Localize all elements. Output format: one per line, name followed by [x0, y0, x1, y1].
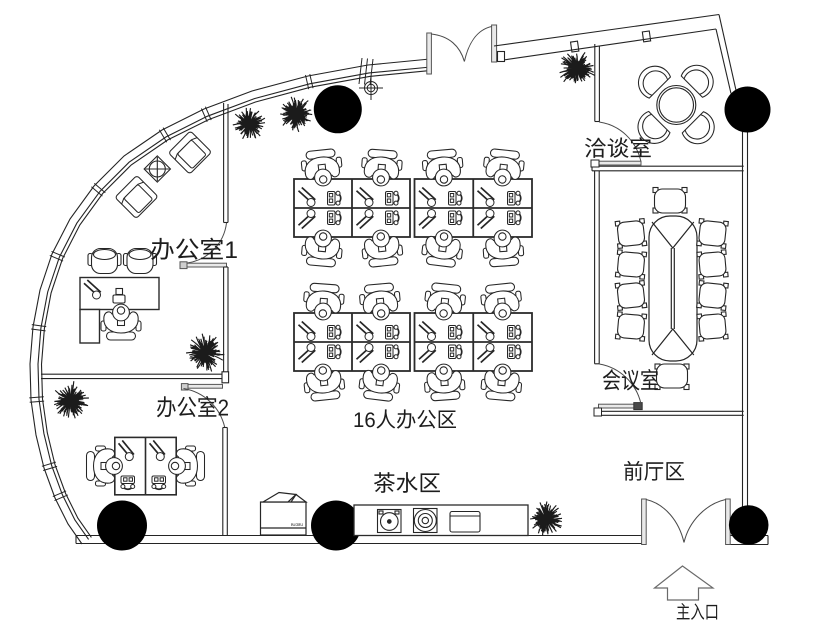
- svg-text:洽谈室: 洽谈室: [584, 136, 652, 161]
- svg-text:办公室2: 办公室2: [156, 395, 229, 421]
- svg-text:主入口: 主入口: [676, 602, 719, 623]
- svg-text:办公室1: 办公室1: [150, 237, 238, 264]
- svg-text:茶水区: 茶水区: [373, 471, 441, 496]
- svg-text:会议室: 会议室: [602, 368, 659, 394]
- svg-text:16人办公区: 16人办公区: [353, 409, 457, 432]
- svg-text:B#38U: B#38U: [291, 522, 303, 527]
- svg-text:前厅区: 前厅区: [623, 460, 685, 484]
